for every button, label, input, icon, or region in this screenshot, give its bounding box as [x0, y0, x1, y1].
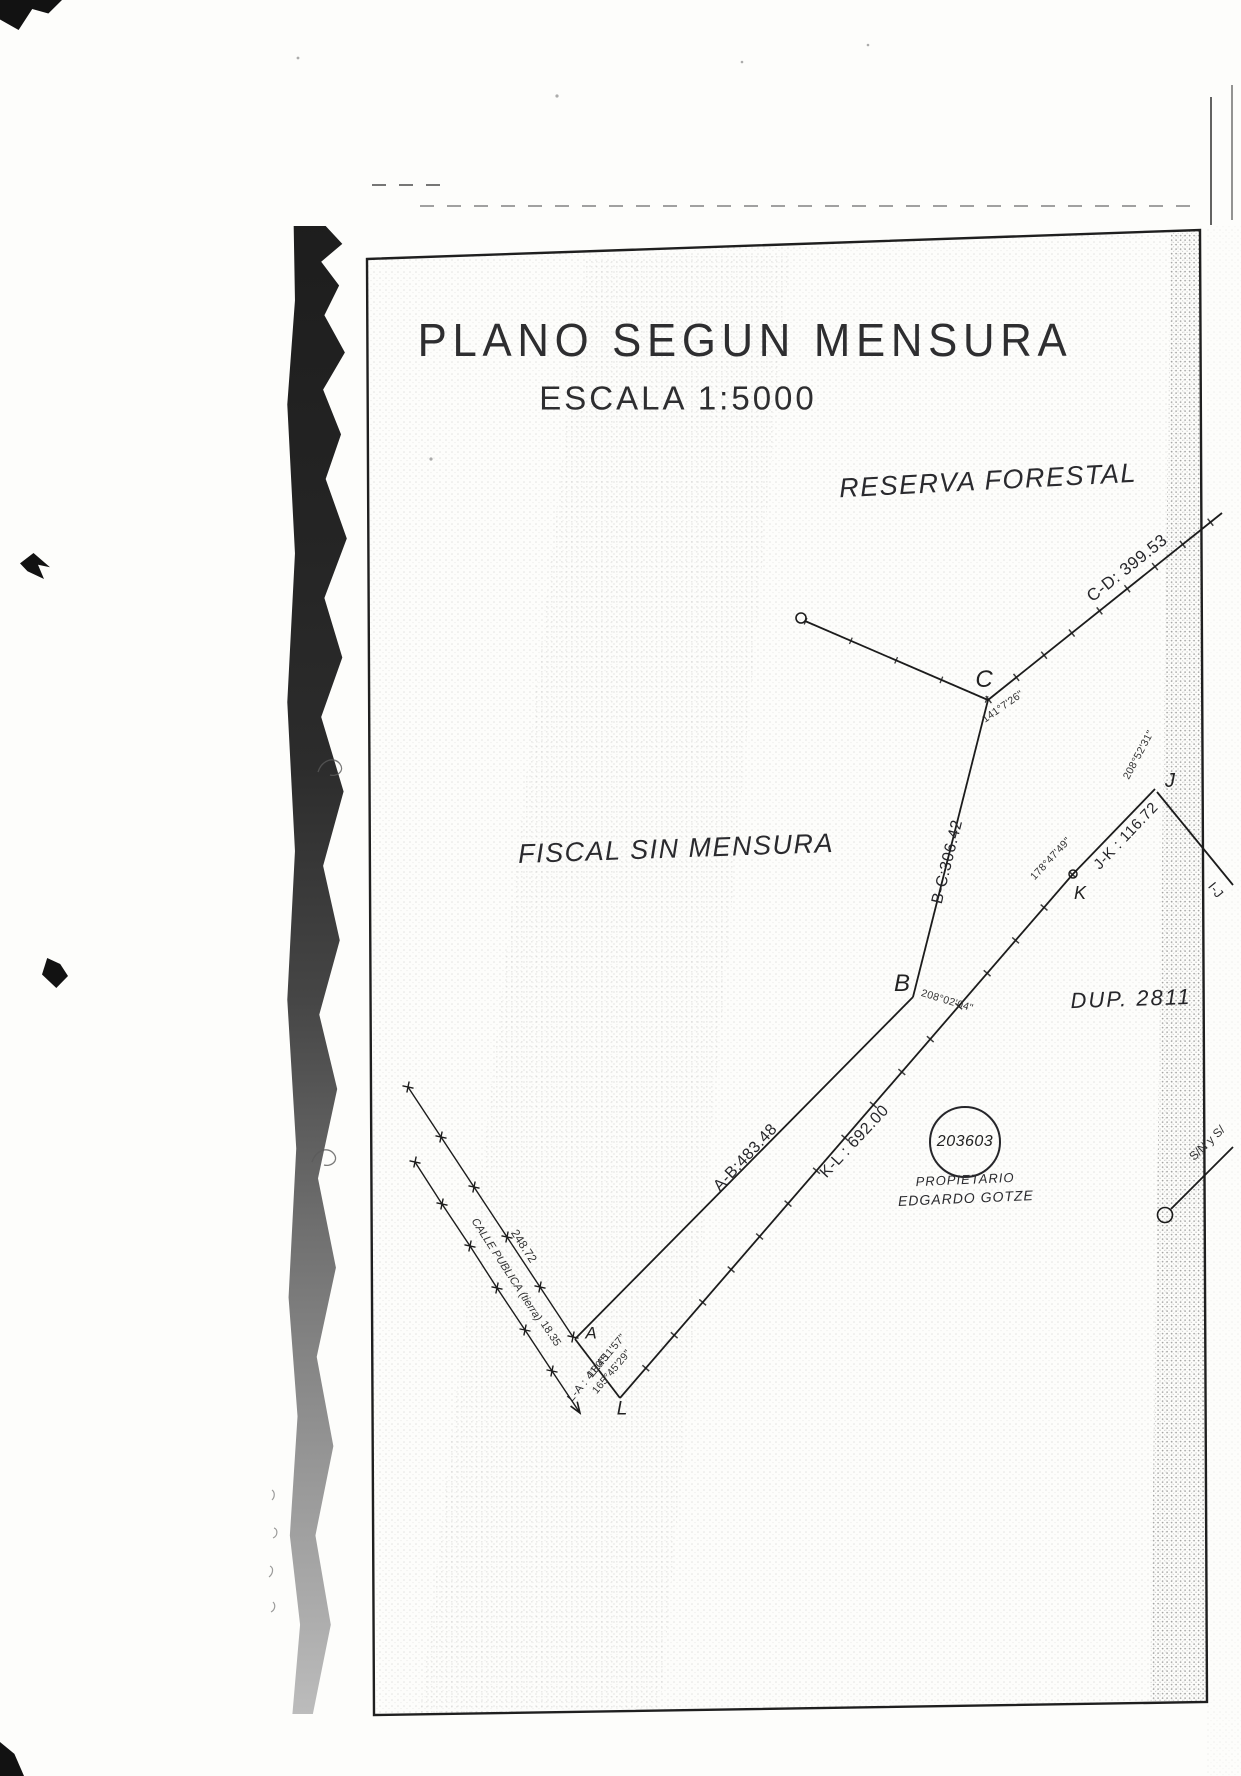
plan-scale: ESCALA 1:5000	[539, 382, 817, 415]
scan-dot-1	[555, 94, 558, 97]
plan-title: PLANO SEGUN MENSURA	[418, 317, 1073, 363]
parcel-number-circle: 203603	[929, 1106, 1001, 1178]
vertex-label-a: A	[585, 1325, 596, 1342]
scan-tickmark-2	[273, 1528, 277, 1538]
scanned-survey-plan: PLANO SEGUN MENSURA ESCALA 1:5000 RESERV…	[0, 0, 1241, 1776]
area-label-dup: DUP. 2811	[1070, 986, 1192, 1012]
scan-dot-2	[741, 61, 744, 64]
survey-drawing	[0, 0, 1241, 1776]
scan-dot-3	[867, 44, 870, 47]
scan-squiggle-1	[318, 760, 342, 776]
scan-dot-4	[429, 457, 432, 460]
vertex-label-l: L	[617, 1400, 628, 1419]
scan-shade-outside-right	[1207, 225, 1241, 1776]
vertex-label-b: B	[894, 972, 910, 996]
scan-tickmark-3	[269, 1566, 273, 1577]
scan-tickmark-1	[272, 1490, 274, 1500]
vertex-label-k: K	[1074, 884, 1086, 902]
owner-block: PROPIETARIO EDGARDO GOTZE	[887, 1169, 1043, 1210]
vertex-label-j: J	[1165, 771, 1175, 791]
scan-tickmark-4	[271, 1602, 275, 1612]
vertex-label-c: C	[975, 668, 992, 692]
scan-dot-5	[297, 57, 300, 60]
parcel-number: 203603	[937, 1133, 993, 1151]
scan-squiggle-2	[312, 1150, 336, 1166]
